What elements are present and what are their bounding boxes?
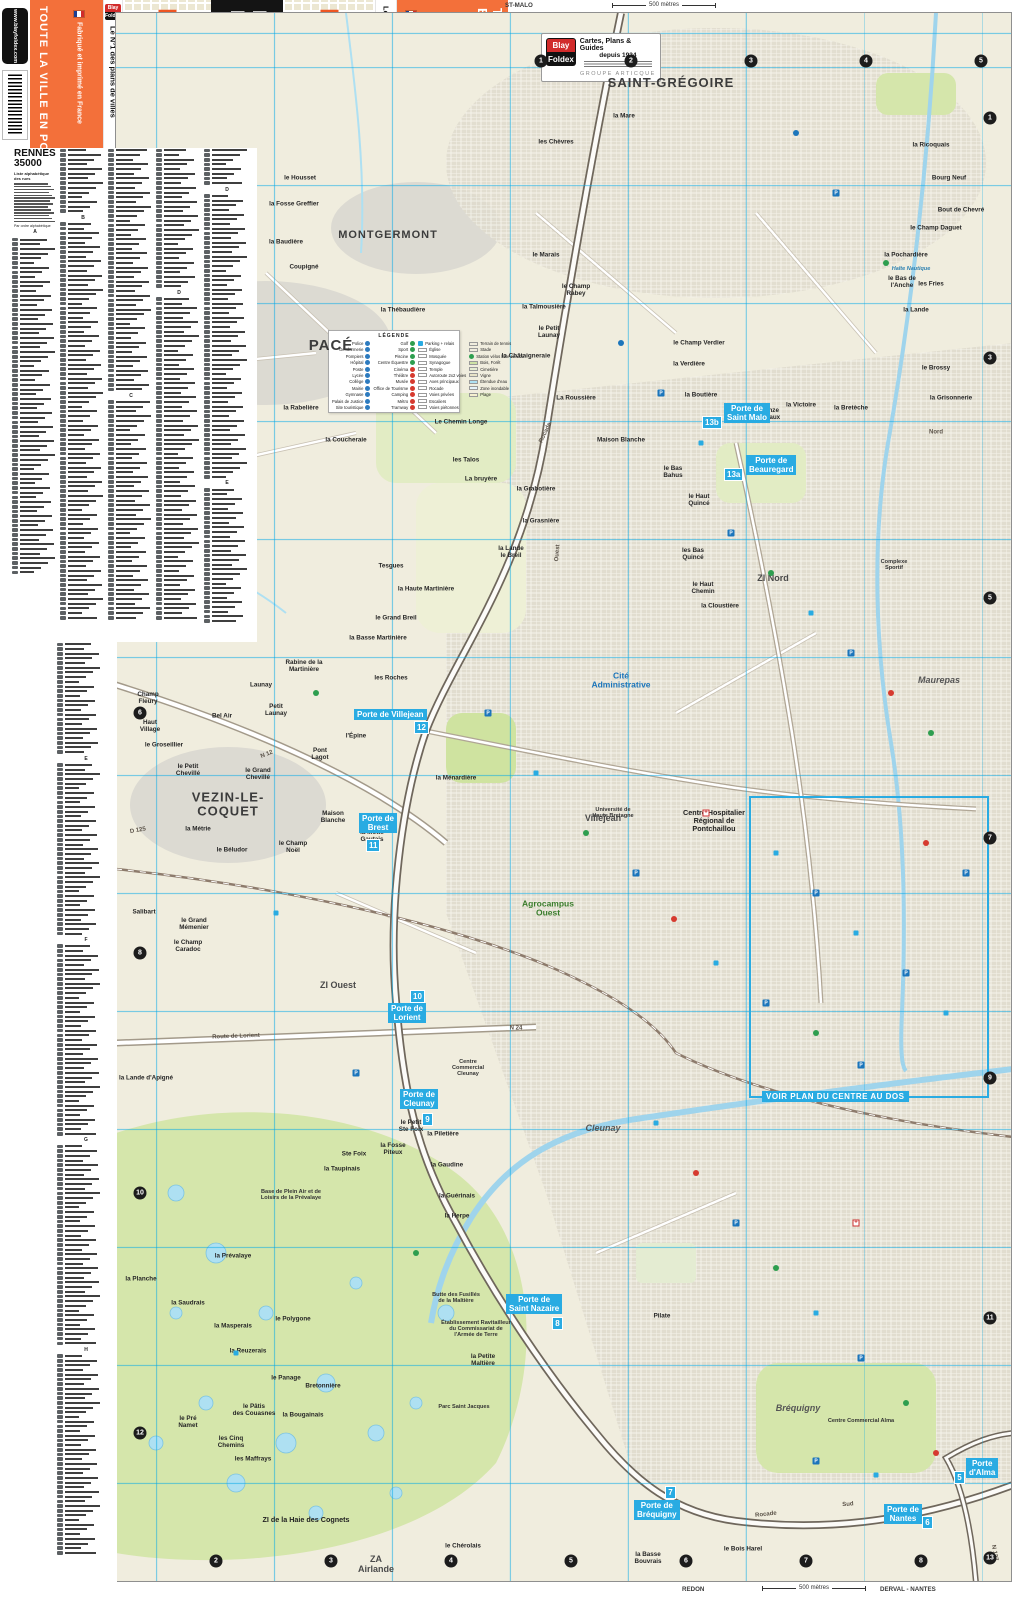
legend-label: Piscine <box>373 354 408 359</box>
legend-label: Terrain de tennis <box>480 341 524 346</box>
map-label: Haut Village <box>140 720 160 734</box>
map-label: la Baudière <box>269 240 303 247</box>
legend-th-tre-icon <box>410 373 415 378</box>
legend-label: Synagogue <box>429 360 466 365</box>
grid-ref-circle: 10 <box>134 1187 147 1200</box>
grid-ref-circle: 8 <box>134 947 147 960</box>
grid-ref-circle: 7 <box>800 1555 813 1568</box>
map-label: les Talos <box>453 458 479 465</box>
map-label: Bout de Chevré <box>938 208 985 215</box>
porte-exit-number: 13a <box>724 468 743 481</box>
map-label: ZI de la Haie des Cognets <box>262 1516 349 1524</box>
velo-station-icon <box>714 961 719 966</box>
legend-label: Centre Équestre <box>373 360 408 365</box>
map-label: le Bas de l'Anche <box>888 276 916 290</box>
legend-m-tro-icon <box>410 399 415 404</box>
legend-label: Temple <box>429 367 466 372</box>
map-label: la Pochardière <box>884 253 927 260</box>
hospital-icon: + <box>853 1220 860 1227</box>
velo-station-icon <box>234 1351 239 1356</box>
map-label: Établissement Ravitailleur du Commissari… <box>441 1320 511 1338</box>
map-label: les Maffrays <box>235 1457 271 1464</box>
map-label: la Cloustière <box>701 604 739 611</box>
legend-gymnase-icon <box>365 392 370 397</box>
porte-exit-number: 7 <box>665 1486 676 1499</box>
legend-voies-pi-tonnes-icon <box>418 405 427 409</box>
legend-gendarmerie-icon <box>365 347 370 352</box>
cover-panel-made-in: Fabriqué et imprimé en France <box>55 0 103 148</box>
hospital-icon: + <box>703 810 710 817</box>
voir-plan-label: VOIR PLAN DU CENTRE AU DOS <box>762 1091 909 1102</box>
map-label: Université de Haute Bretagne <box>592 807 633 819</box>
velo-station-icon <box>814 1311 819 1316</box>
map-label: le Grand Chevillé <box>245 768 271 782</box>
map-label: Bourg Neuf <box>932 176 966 183</box>
map-label: la Grisonnerie <box>930 396 972 403</box>
grid-ref-circle: 6 <box>680 1555 693 1568</box>
map-label: Centre Hospitalier Régional de Pontchail… <box>683 809 745 833</box>
map-label: le Béludor <box>217 848 248 855</box>
map-label: la Fosse Greffier <box>269 202 319 209</box>
map-label: la Boutière <box>685 393 718 400</box>
legend--tendue-d-eau-icon <box>469 380 478 384</box>
map-label: Maison Blanche <box>321 811 346 825</box>
map-label: le Polygone <box>275 1317 310 1324</box>
velo-station-icon <box>809 611 814 616</box>
sport-icon <box>773 1265 779 1271</box>
map-label: la Grabotière <box>517 487 556 494</box>
legend-zone-inondable-icon <box>469 386 478 390</box>
grid-ref-circle: 2 <box>210 1555 223 1568</box>
map-label: La bruyère <box>465 477 497 484</box>
sport-icon <box>928 730 934 736</box>
legend-label: Bois, Forêt <box>480 360 524 365</box>
legend-label: Église <box>429 347 466 352</box>
grid-ref-circle: 8 <box>915 1555 928 1568</box>
legend-voies-priv-es-icon <box>418 393 427 397</box>
map-label: le Petit Ste Foix <box>399 1120 424 1134</box>
map-label: le Pâtis des Couasnes <box>233 1404 276 1418</box>
map-label: la Herpe <box>445 1214 470 1221</box>
map-label: la Gaudine <box>431 1163 463 1170</box>
legend-sport-icon <box>410 347 415 352</box>
sport-icon <box>903 1400 909 1406</box>
map-label: la Ménardière <box>436 776 477 783</box>
map-label: la Taupinais <box>324 1167 360 1174</box>
legend-office-de-tourisme-icon <box>410 386 415 391</box>
grid-ref-circle: 3 <box>325 1555 338 1568</box>
map-label: Sud <box>842 1501 854 1508</box>
map-label: Launay <box>250 683 272 690</box>
index-section-letter: H <box>57 1347 115 1353</box>
parking-icon: P <box>833 190 840 197</box>
map-label: Bréquigny <box>776 1404 821 1414</box>
legend-label: Étendue d'eau <box>480 379 524 384</box>
legend-pompiers-icon <box>365 354 370 359</box>
map-label: la Talmousière <box>522 305 566 312</box>
legend-label: Musée <box>373 379 408 384</box>
sport-icon <box>413 1250 419 1256</box>
porte-label: Porte de Saint Nazaire <box>506 1294 562 1314</box>
map-label: Ste Foix <box>342 1152 367 1159</box>
legend-terrain-de-tennis-icon <box>469 342 478 346</box>
sport-icon <box>768 570 774 576</box>
legend-cimeti-re-icon <box>469 367 478 371</box>
legend-station-v-los-libre-service-icon <box>469 354 474 359</box>
map-label: le Champ Noël <box>279 841 307 855</box>
legend-vigne-icon <box>469 373 478 377</box>
map-label: les Bas Quincé <box>682 548 704 562</box>
brand-address-lines <box>584 61 653 69</box>
map-label: la Planche <box>125 1277 156 1284</box>
grid-ref-circle: 9 <box>984 1072 997 1085</box>
map-label: les Chèvres <box>538 140 573 147</box>
porte-exit-number: 10 <box>410 990 425 1003</box>
map-label: Tesgues <box>378 564 403 571</box>
legend-label: Cimetière <box>480 367 524 372</box>
map-label: Cleunay <box>585 1124 620 1134</box>
map-label: le Chérolais <box>445 1544 481 1551</box>
porte-label: Porte de Lorient <box>388 1003 426 1023</box>
legend-axes-principaux-icon <box>418 380 427 384</box>
map-label: Maison Blanche <box>597 438 645 445</box>
poi-icon <box>693 1170 699 1176</box>
map-label: la Petite Maltière <box>471 1354 495 1368</box>
legend-mus-e-icon <box>410 379 415 384</box>
map-label: Bretonnière <box>305 1384 340 1391</box>
legend-cin-ma-icon <box>410 367 415 372</box>
index-section-letter: E <box>204 480 250 486</box>
parking-icon: P <box>728 530 735 537</box>
porte-label: Porte de Saint Malo <box>724 403 770 423</box>
parking-icon: P <box>658 390 665 397</box>
poi-icon <box>933 1450 939 1456</box>
map-label: Le Chemin Longe <box>435 420 488 427</box>
map-label: les Roches <box>374 676 407 683</box>
index-section-letter: G <box>57 1137 115 1143</box>
map-label: Pilate <box>654 1314 671 1321</box>
legend-h-pital-icon <box>365 360 370 365</box>
legend-site-touristique-icon <box>365 405 370 410</box>
map-label: la Prévalaye <box>215 1254 251 1261</box>
legend-label: Site touristique <box>332 405 363 410</box>
index-entry <box>57 1131 115 1136</box>
legend-escaliers-icon <box>418 399 427 403</box>
map-label: ZA Airlande <box>358 1555 394 1575</box>
map-label: la Thébaudière <box>381 308 425 315</box>
map-label: la Victoire <box>786 403 816 410</box>
index-entry <box>57 931 115 936</box>
made-in-label: Fabriqué et imprimé en France <box>76 22 83 124</box>
index-entry <box>108 387 154 392</box>
website-label: www.blayfoldex.com <box>12 9 18 63</box>
map-label: Agrocampus Ouest <box>522 900 574 919</box>
map-label: Butte des Fusillés de la Maltière <box>432 1292 480 1304</box>
map-label: la Guérinais <box>439 1194 475 1201</box>
grid-ref-circle: 6 <box>134 707 147 720</box>
map-label: la Verdière <box>673 362 705 369</box>
parking-icon: P <box>963 870 970 877</box>
legend-golf-icon <box>410 341 415 346</box>
map-label: la Fosse Piteux <box>380 1143 405 1157</box>
map-label: le Brossy <box>922 366 950 373</box>
map-label: Rabine de la Martinière <box>285 660 322 674</box>
parking-icon: P <box>763 1000 770 1007</box>
legend-label: Voies piétonnes <box>429 405 466 410</box>
map-label: le Groseillier <box>145 743 183 750</box>
grid-ref-circle: 7 <box>984 832 997 845</box>
legend-camping-icon <box>410 392 415 397</box>
dest-derval-nantes: DERVAL - NANTES <box>880 1586 936 1593</box>
porte-exit-number: 12 <box>414 721 429 734</box>
legend-label: Hôpital <box>332 360 363 365</box>
map-label: la Basse Martinière <box>349 636 406 643</box>
legend-label: Pompiers <box>332 354 363 359</box>
map-label: Base de Plein Air et de Loisirs de la Pr… <box>261 1189 321 1201</box>
parking-icon: P <box>903 970 910 977</box>
legend-label: Golf <box>373 341 408 346</box>
street-index-continued: EFGH <box>55 642 117 1592</box>
legend-label: Plage <box>480 392 524 397</box>
map-label: N 24 <box>510 1026 523 1033</box>
legend-parking-relais-icon <box>418 341 423 346</box>
legend-mosqu-e-icon <box>418 354 427 358</box>
map-label: le Champ Rabey <box>562 284 590 298</box>
map-label: la Métrie <box>185 827 211 834</box>
parking-icon: P <box>813 1458 820 1465</box>
legend-temple-icon <box>418 367 427 371</box>
porte-label: Porte de Beauregard <box>746 455 796 475</box>
porte-exit-number: 11 <box>366 839 380 852</box>
map-label: la Bougainais <box>283 1413 324 1420</box>
legend-label: Gymnase <box>332 392 363 397</box>
parking-icon: P <box>813 890 820 897</box>
index-zip: 35000 <box>14 159 56 169</box>
legend-lyc-e-icon <box>365 373 370 378</box>
map-label: la Grasnière <box>523 519 559 526</box>
index-header: RENNES 35000 Liste alphabétique des rues… <box>12 148 58 237</box>
legend-label: Tramway <box>373 405 408 410</box>
parking-icon: P <box>485 710 492 717</box>
poi-icon <box>888 690 894 696</box>
porte-exit-number: 5 <box>954 1471 965 1484</box>
porte-exit-number: 6 <box>922 1516 933 1529</box>
legend-label: Parking + relais <box>425 341 466 346</box>
index-subtitle: Liste alphabétique des rues <box>14 171 56 181</box>
scale-top: 500 mètres <box>612 2 716 8</box>
legend-label: Sport <box>373 347 408 352</box>
map-label: le Pré Namet <box>178 1416 197 1430</box>
velo-station-icon <box>274 911 279 916</box>
sport-icon <box>883 260 889 266</box>
legend-label: Collège <box>332 379 363 384</box>
porte-label: Porte de Bréquigny <box>634 1500 680 1520</box>
legend-label: Rocade <box>429 386 466 391</box>
legend-label: Théâtre <box>373 373 408 378</box>
barcode <box>2 70 28 140</box>
legend-coll-ge-icon <box>365 379 370 384</box>
index-entry <box>204 619 250 624</box>
poi-blue-icon <box>793 130 799 136</box>
grid-ref-circle: 2 <box>625 55 638 68</box>
folded-map-sheet: www.blayfoldex.com TOUTE LA VILLE EN POC… <box>0 0 1023 1600</box>
map-label: le Petit Launay <box>538 326 560 340</box>
legend-label: Axes principaux <box>429 379 466 384</box>
index-intro-text <box>14 183 56 222</box>
legend-synagogue-icon <box>418 361 427 365</box>
index-entry <box>60 615 106 620</box>
index-entry <box>57 1551 115 1556</box>
index-entry <box>156 284 202 289</box>
grid-ref-circle: 13 <box>984 1552 997 1565</box>
map-label: la Lande <box>903 308 929 315</box>
index-letter-a: A <box>14 229 56 235</box>
index-section-letter: F <box>57 937 115 943</box>
grid-ref-circle: 3 <box>745 55 758 68</box>
map-label: les Cinq Chemins <box>218 1436 245 1450</box>
map-label: la Piletière <box>427 1132 459 1139</box>
map-label: le Petit Chevillé <box>176 764 200 778</box>
legend-label: Poste <box>332 367 363 372</box>
velo-station-icon <box>534 771 539 776</box>
grid-ref-circle: 1 <box>535 55 548 68</box>
index-section-letter: E <box>57 756 115 762</box>
sport-icon <box>583 830 589 836</box>
grid-ref-circle: 5 <box>984 592 997 605</box>
legend-label: Métro <box>373 399 408 404</box>
legend-label: Camping <box>373 392 408 397</box>
legend-tramway-icon <box>410 405 415 410</box>
legend-label: Zone inondable <box>480 386 524 391</box>
map-label: l'Épine <box>346 734 366 741</box>
velo-station-icon <box>774 851 779 856</box>
sport-icon <box>813 1030 819 1036</box>
map-label: le Panage <box>271 1376 300 1383</box>
porte-exit-number: 8 <box>552 1317 563 1330</box>
grid-ref-circle: 12 <box>134 1427 147 1440</box>
grid-ref-circle: 4 <box>445 1555 458 1568</box>
map-label: Nord <box>929 430 943 437</box>
legend-label: Lycée <box>332 373 363 378</box>
legend-label: Autoroute 2x2 voies <box>429 373 466 378</box>
map-label: les Fries <box>918 282 944 289</box>
legend-label: Mairie <box>332 386 363 391</box>
grid-ref-circle: 5 <box>975 55 988 68</box>
map-label: Petit Launay <box>265 704 287 718</box>
scale-bottom: 500 mètres <box>762 1585 866 1591</box>
map-label: le Marais <box>533 253 560 260</box>
parking-icon: P <box>353 1070 360 1077</box>
index-entry <box>204 475 250 480</box>
map-label: le Champ Caradoc <box>174 940 202 954</box>
velo-station-icon <box>944 1011 949 1016</box>
legend-label: Escaliers <box>429 399 466 404</box>
grid-ref-circle: 4 <box>860 55 873 68</box>
legend-stade-icon <box>469 348 478 352</box>
map-label: le Bas Bahus <box>663 466 682 480</box>
map-label: la Basse Bouvrais <box>635 1552 662 1566</box>
porte-exit-number: 13b <box>702 416 722 429</box>
map-label: Parc Saint Jacques <box>438 1404 489 1410</box>
legend-label: Palais de Justice <box>332 399 363 404</box>
legend--glise-icon <box>418 348 427 352</box>
map-label: Bel Air <box>212 714 232 721</box>
index-entry <box>57 1341 115 1346</box>
map-label: SAINT-GRÉGOIRE <box>608 76 735 90</box>
parking-icon: P <box>858 1062 865 1069</box>
legend-mairie-icon <box>365 386 370 391</box>
map-label: le Champ Verdier <box>673 341 724 348</box>
porte-label: Porte d'Alma <box>966 1458 998 1478</box>
map-label: la Ricoquais <box>912 143 949 150</box>
map-label: Centre Commercial Cleunay <box>452 1059 484 1077</box>
map-label: le Haut Chemin <box>691 582 714 596</box>
parking-icon: P <box>848 650 855 657</box>
parking-icon: P <box>733 1220 740 1227</box>
brand-line1: Cartes, Plans & Guides <box>580 38 656 52</box>
map-label: MONTGERMONT <box>338 229 438 241</box>
map-label: La Roussière <box>556 396 596 403</box>
map-label: la Mare <box>613 114 635 121</box>
parking-icon: P <box>858 1355 865 1362</box>
index-entry <box>156 615 202 620</box>
dest-redon: REDON <box>682 1586 704 1593</box>
website-box: www.blayfoldex.com <box>2 8 28 64</box>
map-label: le Grand Mémenier <box>179 918 208 932</box>
map-label: le Housset <box>284 176 316 183</box>
map-label: Champ Fleury <box>137 692 158 706</box>
map-label: Halte Nautique <box>892 266 931 272</box>
legend-rocade-icon <box>418 386 427 390</box>
map-label: le Haut Quincé <box>688 494 709 508</box>
map-label: le Bois Harel <box>724 1547 762 1554</box>
map-label: la Saudrais <box>171 1301 205 1308</box>
index-section-letter: B <box>60 215 106 221</box>
map-label: Coupigné <box>289 265 318 272</box>
legend-plage-icon <box>469 393 478 397</box>
dest-st-malo: ST-MALO <box>505 2 533 9</box>
velo-station-icon <box>654 1121 659 1126</box>
index-entry <box>204 181 250 186</box>
grid-ref-circle: 5 <box>565 1555 578 1568</box>
velo-station-icon <box>874 1473 879 1478</box>
map-label: VEZIN-LE- COQUET <box>192 791 265 820</box>
porte-exit-number: 9 <box>422 1113 433 1126</box>
map-label: le Champ Daguet <box>910 226 961 233</box>
legend-bois-for-t-icon <box>469 361 478 365</box>
map-label: la Coucheraie <box>325 438 366 445</box>
parking-icon: P <box>633 870 640 877</box>
poi-blue-icon <box>618 340 624 346</box>
map-label: la Châtaigneraie <box>502 354 551 361</box>
index-section-letter: D <box>156 290 202 296</box>
street-index: RENNES 35000 Liste alphabétique des rues… <box>10 148 257 642</box>
map-label: Salibart <box>132 910 155 917</box>
legend-piscine-icon <box>410 354 415 359</box>
map-label: Centre Commercial Alma <box>828 1418 894 1424</box>
map-label: Maurepas <box>918 676 960 686</box>
france-flag-icon <box>73 10 85 18</box>
map-label: la Haute Martinière <box>398 587 454 594</box>
porte-label: Porte de Cleunay <box>400 1089 438 1109</box>
grid-ref-circle: 3 <box>984 352 997 365</box>
map-label: ZI Ouest <box>320 981 356 991</box>
map-label: Complexe Sportif <box>881 559 908 571</box>
poi-icon <box>923 840 929 846</box>
legend-label: Vigne <box>480 373 524 378</box>
map-label: la Rabelière <box>283 406 318 413</box>
map-label: la Lande le Breil <box>498 546 524 560</box>
